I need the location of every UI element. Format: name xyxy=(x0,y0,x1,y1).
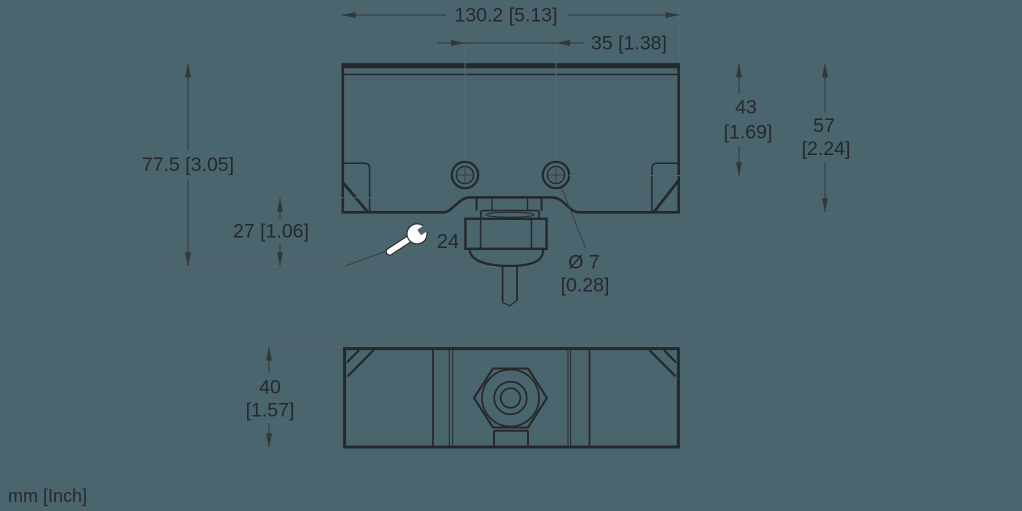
label-total-height: 77.5 [3.05] xyxy=(142,154,234,176)
units-label: mm [Inch] xyxy=(8,486,87,506)
chamfer-right xyxy=(654,181,679,213)
wrench-leader xyxy=(345,250,390,266)
cable xyxy=(503,266,517,303)
gland-hex-nut-bottom xyxy=(474,369,547,448)
gland-neck xyxy=(494,431,528,447)
label-hole-offset-in: [1.69] xyxy=(724,122,773,144)
dimension-labels: 130.2 [5.13] 35 [1.38] 77.5 [3.05] 27 [1… xyxy=(8,5,850,507)
label-body-height-mm: 57 xyxy=(813,115,835,137)
washer-lens xyxy=(486,212,534,217)
bottom-body-outline xyxy=(345,349,679,447)
label-cable-dia-mm: Ø 7 xyxy=(568,252,599,274)
wrench-icon xyxy=(381,218,434,262)
label-width: 130.2 [5.13] xyxy=(454,5,557,27)
corner-chamfer-left xyxy=(347,350,374,376)
label-gland-drop: 27 [1.06] xyxy=(233,221,309,243)
label-cable-dia-in: [0.28] xyxy=(561,275,610,297)
label-hole-offset-mm: 43 xyxy=(735,97,757,119)
label-body-height-in: [2.24] xyxy=(802,138,851,160)
cable-dia-leader xyxy=(562,188,586,249)
front-view xyxy=(341,63,680,306)
cable-break-end xyxy=(503,300,517,306)
bottom-view xyxy=(345,349,679,447)
gland-nut xyxy=(465,219,546,249)
label-wrench-size: 24 xyxy=(437,231,459,253)
gland-dome xyxy=(470,249,544,266)
label-hole-spacing: 35 [1.38] xyxy=(591,33,667,55)
technical-drawing-canvas: 130.2 [5.13] 35 [1.38] 77.5 [3.05] 27 [1… xyxy=(0,0,1022,511)
label-depth-in: [1.57] xyxy=(246,400,295,422)
corner-chamfer-right xyxy=(650,350,677,376)
dimension-drawing: 130.2 [5.13] 35 [1.38] 77.5 [3.05] 27 [1… xyxy=(0,0,1022,511)
label-depth-mm: 40 xyxy=(259,377,281,399)
cable-gland xyxy=(465,197,546,305)
